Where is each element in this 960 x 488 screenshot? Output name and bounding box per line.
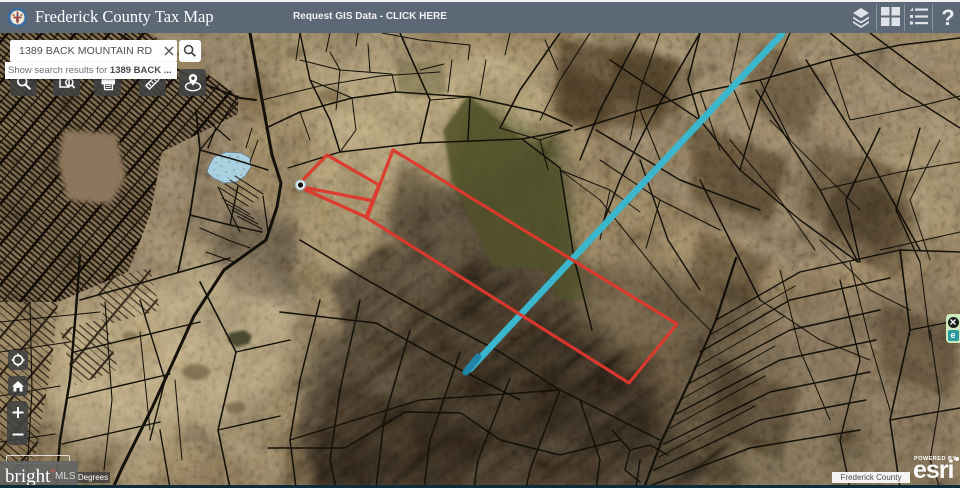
svg-text:?: ? — [941, 5, 954, 30]
